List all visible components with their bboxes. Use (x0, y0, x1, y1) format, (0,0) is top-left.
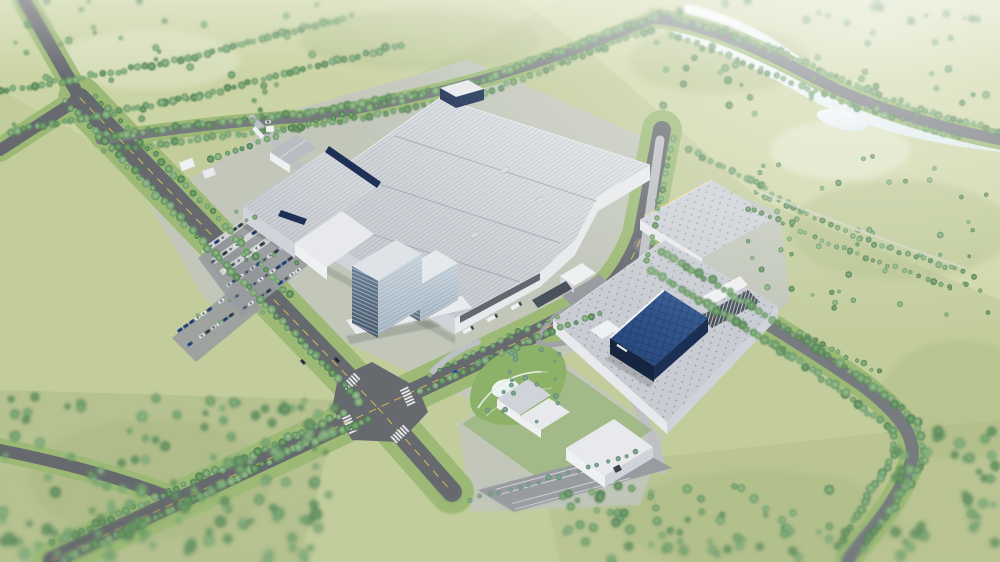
campus-rendering (0, 0, 1000, 562)
aerial-render (0, 0, 1000, 562)
corner-haze (0, 0, 1000, 562)
